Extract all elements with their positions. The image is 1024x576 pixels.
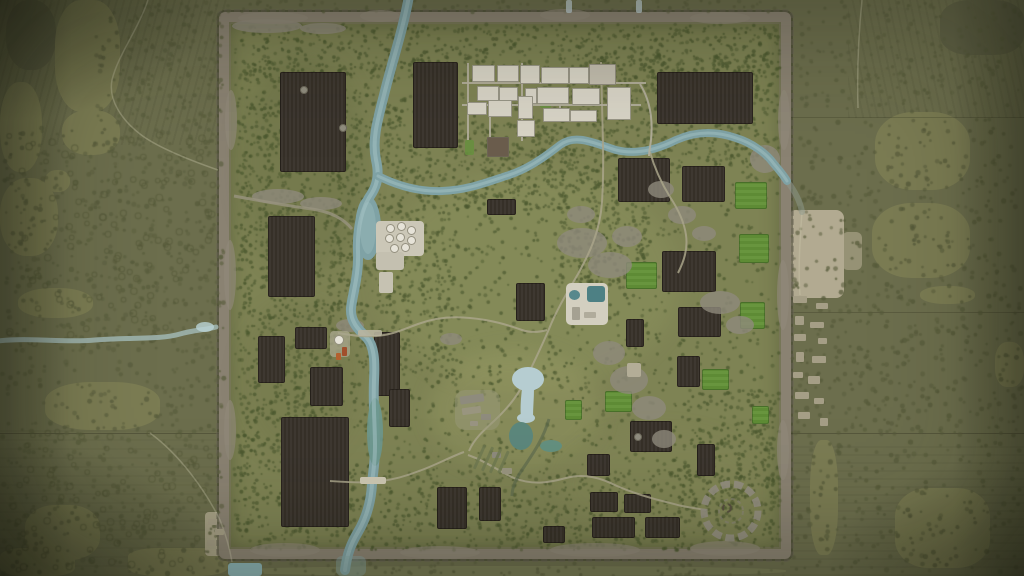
nw-rocky-trail: [234, 196, 352, 229]
map-viewport[interactable]: [0, 0, 1024, 576]
west-stream: [0, 327, 216, 341]
outside-road-e: [799, 212, 802, 295]
river-east-branch: [378, 133, 787, 191]
road-east-trail: [650, 152, 687, 273]
town-road-east: [640, 84, 652, 156]
outside-road-ne: [858, 0, 862, 108]
road-south-bridge: [330, 452, 464, 482]
waterways-and-roads-svg: [0, 0, 1024, 576]
lake-neck: [521, 388, 534, 417]
road-south-east: [468, 455, 706, 510]
teal-pond-2: [540, 440, 562, 452]
lake-flare: [517, 413, 535, 423]
lake-head: [512, 367, 544, 391]
stone-ring-mark: [723, 504, 731, 512]
outside-road-sw: [150, 433, 232, 562]
outside-road-nw: [111, 0, 218, 170]
teal-pond: [509, 422, 533, 450]
river-exit-wash: [787, 181, 802, 212]
river-main-highlight: [345, 0, 409, 570]
